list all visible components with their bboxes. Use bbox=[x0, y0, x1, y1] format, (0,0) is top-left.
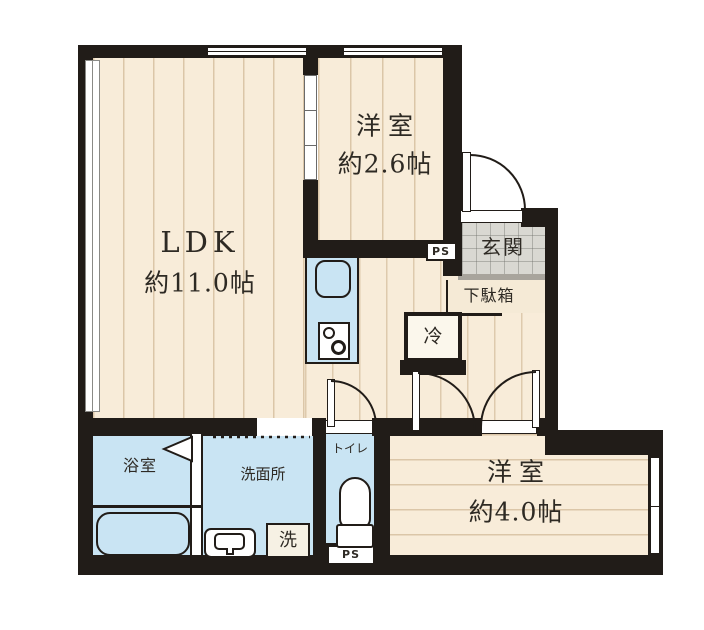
toilet-label: トイレ bbox=[332, 442, 368, 455]
wall bbox=[545, 430, 663, 455]
bathroom-divider bbox=[93, 505, 203, 508]
wall bbox=[545, 208, 558, 436]
washroom-opening bbox=[257, 418, 312, 436]
bathtub-icon bbox=[96, 512, 190, 556]
toilet-icon bbox=[339, 477, 371, 529]
kitchen-sink-icon bbox=[315, 260, 351, 298]
shoe-cabinet-label: 下駄箱 bbox=[463, 287, 514, 305]
floor-plan: LDK 約11.0帖 洋室 約2.6帖 洋室 約4.0帖 玄関 下駄箱 浴室 洗… bbox=[0, 0, 704, 630]
hall-door-leaf bbox=[412, 371, 420, 431]
western-room-small-label: 洋室 bbox=[356, 112, 420, 140]
wall bbox=[313, 434, 326, 557]
wall bbox=[374, 418, 390, 557]
wall bbox=[537, 418, 558, 436]
refrigerator-label: 冷 bbox=[423, 327, 442, 348]
stove-icon bbox=[318, 322, 350, 360]
wall bbox=[521, 208, 545, 227]
wall bbox=[400, 360, 466, 375]
pipe-space-upper-label: PS bbox=[432, 246, 450, 258]
window bbox=[650, 457, 660, 554]
entrance-door-leaf bbox=[462, 152, 471, 212]
window bbox=[85, 60, 100, 412]
wall bbox=[303, 180, 318, 240]
washroom-label: 洗面所 bbox=[240, 466, 285, 483]
western-room-large-area-label: 約4.0帖 bbox=[469, 498, 564, 526]
toilet-door-leaf bbox=[327, 379, 335, 427]
western-room-large-label: 洋室 bbox=[487, 458, 551, 486]
wall bbox=[78, 418, 257, 436]
bathroom-label: 浴室 bbox=[123, 457, 157, 475]
window bbox=[207, 47, 307, 56]
ldk-area-label: 約11.0帖 bbox=[144, 269, 256, 297]
toilet-tank-icon bbox=[336, 524, 374, 548]
room-door-leaf bbox=[532, 370, 540, 428]
pipe-space-lower-label: PS bbox=[342, 549, 360, 561]
washbasin-icon bbox=[204, 528, 256, 558]
entrance-label: 玄関 bbox=[481, 236, 525, 258]
ldk-label: LDK bbox=[160, 227, 239, 259]
window bbox=[343, 47, 443, 56]
sliding-door bbox=[304, 75, 317, 180]
washer-label: 洗 bbox=[279, 531, 297, 551]
western-room-small-area-label: 約2.6帖 bbox=[338, 150, 433, 178]
entrance-door-arc bbox=[470, 155, 525, 210]
bathroom-door bbox=[190, 434, 203, 555]
room-door-sill bbox=[481, 420, 537, 434]
